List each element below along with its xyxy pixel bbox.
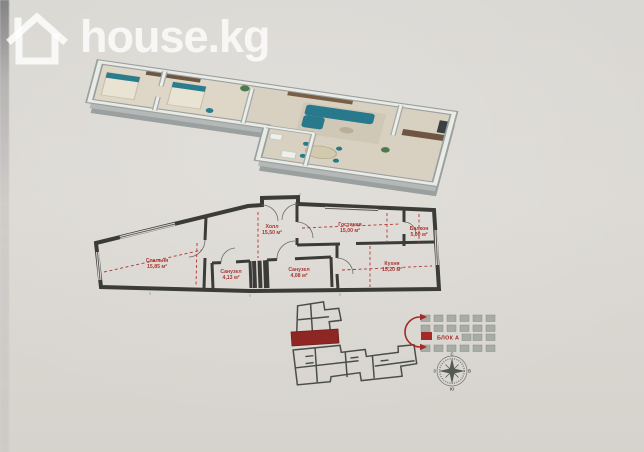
block-legend: БЛОК А: [421, 315, 495, 352]
highlighted-unit: [291, 329, 339, 346]
block-label: БЛОК А: [437, 336, 459, 342]
listing-photo: house.kg: [0, 0, 644, 452]
floorplan-2d: Спальня 15,85 м² Холл 15,50 м² Гостиная …: [96, 193, 439, 297]
site-diagram: БЛОК А: [291, 299, 495, 392]
room-area-bathroom1: 4,13 м²: [222, 275, 239, 281]
room-area-kitchen: 15,20 м²: [382, 267, 402, 273]
compass-north-label: С: [450, 352, 453, 357]
room-area-bedroom: 15,85 м²: [147, 264, 167, 270]
highlighted-block-square: [421, 332, 432, 340]
iso-floorplan-3d: [81, 62, 455, 196]
room-area-balcony: 5,00 м²: [410, 232, 427, 238]
vent-shaft: [254, 260, 266, 288]
compass-icon: С В Ю З: [433, 352, 471, 392]
door-arcs: [189, 204, 416, 274]
room-area-bathroom2: 4,08 м²: [290, 273, 307, 279]
room-area-living: 15,00 м²: [340, 228, 360, 234]
room-labels: Спальня 15,85 м² Холл 15,50 м² Гостиная …: [146, 222, 429, 281]
compass-south-label: Ю: [450, 387, 455, 392]
room-area-hall: 15,50 м²: [262, 230, 282, 236]
compass-west-label: З: [433, 369, 436, 374]
compass-east-label: В: [468, 369, 471, 374]
